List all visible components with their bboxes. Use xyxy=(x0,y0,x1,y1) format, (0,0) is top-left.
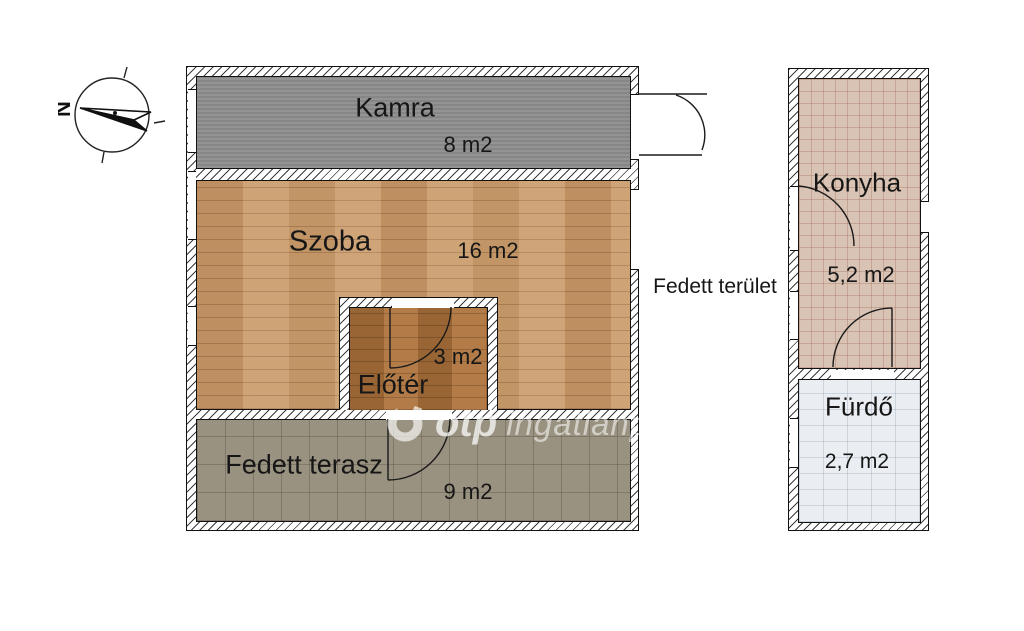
window-right-1 xyxy=(631,189,639,270)
window-left-2 xyxy=(188,171,196,240)
compass-icon: N xyxy=(58,57,172,169)
label-eloter-area: 3 m2 xyxy=(434,344,483,370)
eloter-door-opening xyxy=(392,298,454,308)
kamra-door-icon xyxy=(639,94,707,155)
label-fedett-terulet: Fedett terület xyxy=(653,275,777,299)
terasz-door-opening xyxy=(386,410,452,420)
label-furdo-name: Fürdő xyxy=(825,392,893,423)
compass-north-label: N xyxy=(58,101,75,117)
room-konyha xyxy=(798,78,921,369)
konyha-door-opening xyxy=(790,186,798,251)
label-eloter-name: Előtér xyxy=(358,370,429,401)
furdo-door-opening xyxy=(831,370,894,379)
label-konyha-area: 5,2 m2 xyxy=(827,262,894,288)
label-terasz-area: 9 m2 xyxy=(444,479,493,505)
label-kamra-name: Kamra xyxy=(355,93,435,124)
label-szoba-area: 16 m2 xyxy=(457,238,518,264)
window-konyha-left xyxy=(790,291,798,340)
window-left-3 xyxy=(188,306,196,346)
window-konyha-right xyxy=(921,201,929,233)
label-konyha-name: Konyha xyxy=(813,168,901,199)
label-kamra-area: 8 m2 xyxy=(444,132,493,158)
label-furdo-area: 2,7 m2 xyxy=(825,450,889,474)
window-furdo-left xyxy=(790,418,798,468)
floorplan-canvas: N xyxy=(0,0,1024,631)
label-szoba-name: Szoba xyxy=(289,226,371,259)
label-terasz-name: Fedett terasz xyxy=(225,450,383,481)
kamra-door-opening xyxy=(631,94,639,160)
window-left-1 xyxy=(188,89,196,153)
